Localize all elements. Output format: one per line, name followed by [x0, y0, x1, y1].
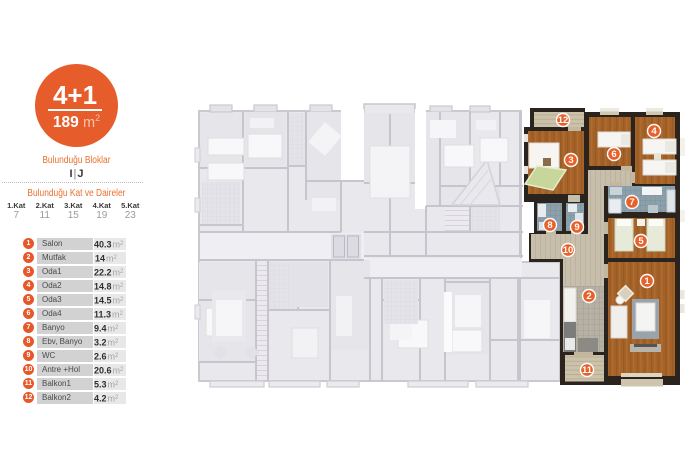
svg-text:9: 9: [574, 222, 579, 233]
svg-text:10: 10: [563, 245, 574, 256]
svg-text:6: 6: [611, 149, 616, 160]
svg-text:12: 12: [558, 115, 569, 126]
svg-text:5: 5: [638, 236, 644, 247]
svg-text:3: 3: [568, 155, 573, 166]
svg-text:7: 7: [629, 197, 634, 208]
svg-text:2: 2: [586, 291, 591, 302]
svg-text:1: 1: [644, 276, 650, 287]
svg-text:4: 4: [651, 126, 657, 137]
svg-text:11: 11: [582, 365, 593, 376]
svg-text:8: 8: [547, 220, 552, 231]
